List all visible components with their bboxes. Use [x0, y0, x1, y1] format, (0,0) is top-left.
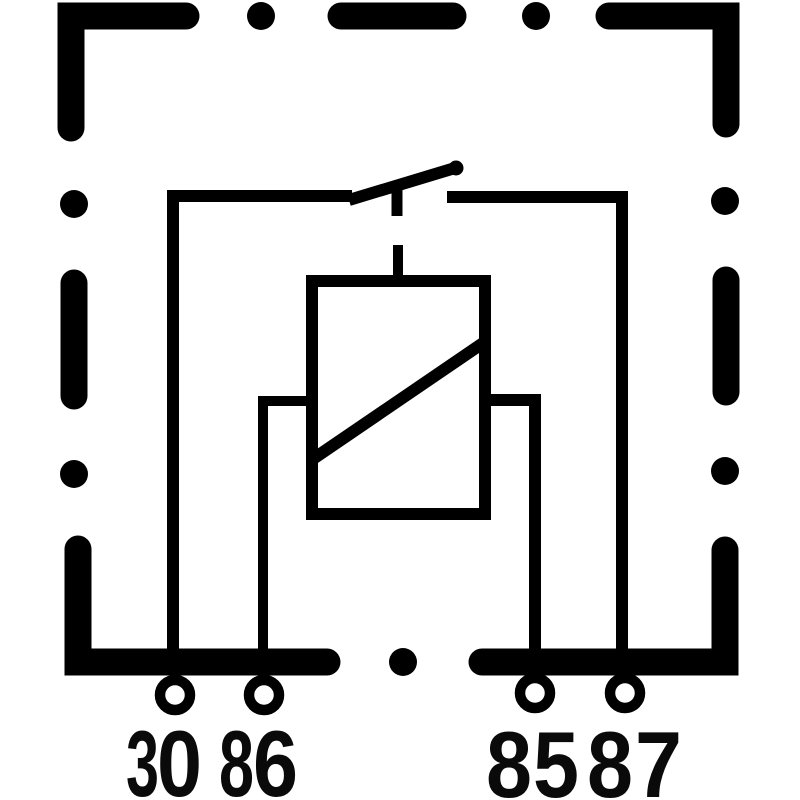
svg-text:8: 8: [587, 712, 633, 800]
svg-text:5: 5: [533, 712, 579, 800]
svg-text:7: 7: [635, 712, 682, 800]
svg-text:6: 6: [253, 711, 298, 800]
svg-text:3: 3: [126, 711, 159, 800]
svg-text:8: 8: [486, 712, 532, 800]
svg-text:8: 8: [219, 711, 254, 800]
svg-text:0: 0: [157, 711, 202, 800]
